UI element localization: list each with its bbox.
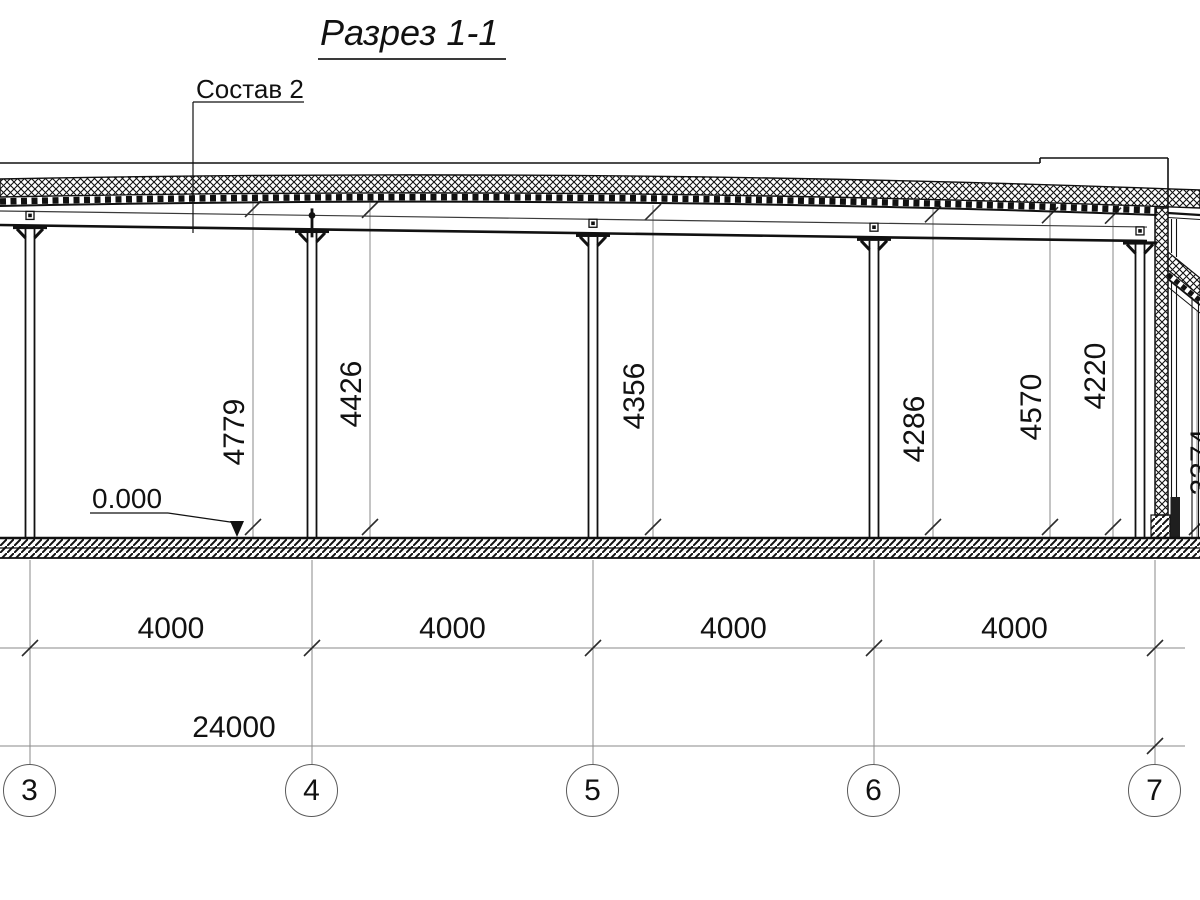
drawing-title: Разрез 1-1: [318, 12, 506, 60]
floor-level-mark: 0.000: [92, 483, 162, 515]
section-drawing: Разрез 1-1 Состав 2 0.000 24000 47794426…: [0, 0, 1200, 900]
axis-bubble: 3: [3, 764, 56, 817]
bay-dimension-label: 4000: [981, 612, 1048, 646]
axis-bubble: 6: [847, 764, 900, 817]
total-dimension-label: 24000: [192, 711, 275, 745]
height-dimension-label: 4220: [1079, 343, 1113, 410]
height-dimension-label: 3374: [1185, 429, 1200, 496]
axis-bubble: 4: [285, 764, 338, 817]
height-dimension-label: 4779: [218, 399, 252, 466]
axis-bubble: 5: [566, 764, 619, 817]
roof-composition-callout-label: Состав 2: [196, 74, 304, 105]
axis-bubble: 7: [1128, 764, 1181, 817]
bay-dimension-label: 4000: [700, 612, 767, 646]
bay-dimension-label: 4000: [419, 612, 486, 646]
height-dimension-label: 4570: [1015, 374, 1049, 441]
height-dimension-label: 4356: [618, 363, 652, 430]
height-dimension-label: 4426: [335, 361, 369, 428]
height-dimension-label: 4286: [898, 396, 932, 463]
bay-dimension-label: 4000: [138, 612, 205, 646]
